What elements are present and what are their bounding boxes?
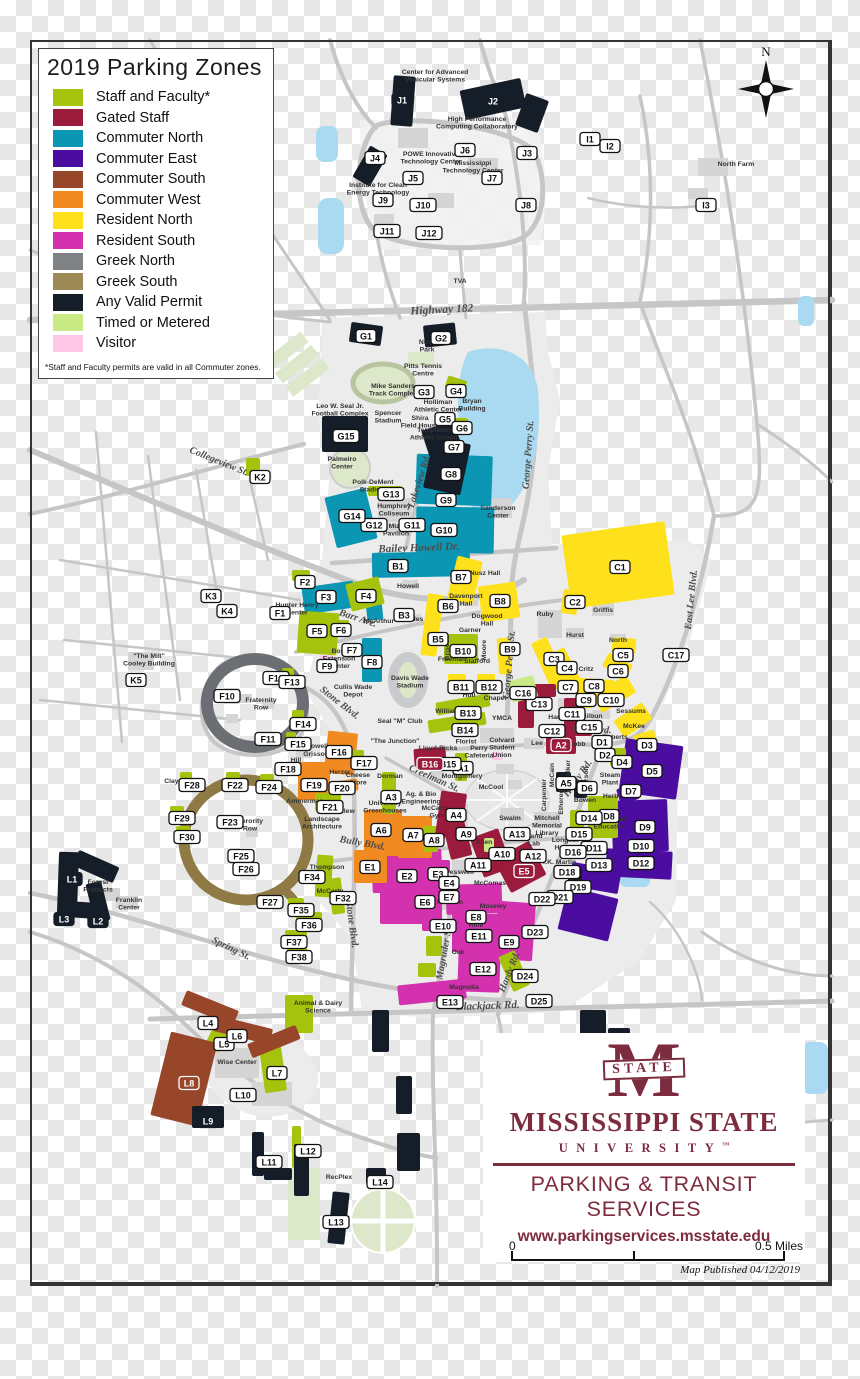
legend-label-cwest: Commuter West [96,192,200,208]
zone-marker-D22: D22 [529,893,555,906]
building-label: McArthur [364,618,395,625]
svg-text:B5: B5 [432,634,444,644]
svg-text:F10: F10 [219,691,235,701]
scale-line [511,1259,785,1261]
legend-title: 2019 Parking Zones [39,51,273,87]
legend-item-gated: Gated Staff [39,108,273,129]
trademark: ™ [722,1141,729,1149]
building-label: BryanBuilding [458,398,485,412]
svg-text:D24: D24 [517,971,534,981]
zone-marker-G14: G14 [339,510,365,523]
zone-marker-I3: I3 [696,199,716,212]
svg-text:F27: F27 [262,897,278,907]
north-label: N [761,44,771,59]
svg-text:D1: D1 [596,737,608,747]
building-label: McKee [623,723,645,730]
zone-marker-J10: J10 [410,199,436,212]
zone-marker-D14: D14 [576,812,602,825]
svg-text:D13: D13 [591,860,608,870]
svg-text:D7: D7 [625,786,637,796]
scale-tick-start [511,1251,513,1260]
svg-text:F25: F25 [233,851,249,861]
svg-text:A8: A8 [428,835,440,845]
svg-text:J9: J9 [378,195,388,205]
building-label: SpencerStadium [375,410,402,424]
map-canvas: Highway 182Collegeview St.George Perry S… [0,0,860,1379]
legend-items: Staff and Faculty*Gated StaffCommuter No… [39,87,273,354]
svg-text:F38: F38 [291,952,307,962]
svg-text:B11: B11 [453,682,469,692]
legend-item-visitor: Visitor [39,333,273,354]
zone-marker-L11: L11 [256,1156,282,1169]
svg-text:D23: D23 [527,927,544,937]
legend-label-timed: Timed or Metered [96,315,210,331]
svg-text:C16: C16 [515,688,532,698]
svg-text:F3: F3 [321,592,332,602]
zone-marker-G2: G2 [431,332,451,345]
zone-marker-J6: J6 [455,144,475,157]
building-label: FranklinCenter [116,897,142,911]
zone-marker-F23: F23 [217,816,243,829]
building-label: North Farm [718,161,755,168]
building-label: POWE InnovativeTechnology Center [400,151,461,165]
svg-text:A5: A5 [560,778,572,788]
legend-label-gsouth: Greek South [96,274,177,290]
zone-marker-B1: B1 [388,560,408,573]
svg-text:F19: F19 [306,780,322,790]
zone-marker-E10: E10 [430,920,456,933]
zone-marker-E12: E12 [470,963,496,976]
svg-text:D2: D2 [599,750,611,760]
svg-text:J11: J11 [380,226,395,236]
svg-text:F6: F6 [336,625,347,635]
zone-marker-K2: K2 [250,471,270,484]
svg-text:A9: A9 [460,829,472,839]
legend-label-ceast: Commuter East [96,151,197,167]
svg-text:L3: L3 [59,914,70,924]
svg-text:B13: B13 [460,708,477,718]
svg-text:G1: G1 [360,331,372,341]
scale-tick-end [783,1251,785,1260]
zone-marker-G3: G3 [414,386,434,399]
svg-text:B8: B8 [494,596,506,606]
svg-text:E6: E6 [419,897,430,907]
svg-text:F5: F5 [312,626,323,636]
svg-text:K4: K4 [221,606,233,616]
building-label: "The Junction" [371,738,420,745]
zone-marker-B5: B5 [428,633,448,646]
zone-marker-B10: B10 [450,645,476,658]
svg-text:D11: D11 [586,843,602,853]
zone-marker-A2: A2 [551,739,571,752]
legend-item-staff: Staff and Faculty* [39,87,273,108]
zone-marker-A9: A9 [456,828,476,841]
zone-marker-L10: L10 [230,1089,256,1102]
svg-text:G5: G5 [439,414,451,424]
svg-text:F32: F32 [335,893,351,903]
zone-marker-L2: L2 [88,915,108,928]
svg-text:A6: A6 [375,825,387,835]
svg-text:J10: J10 [415,200,430,210]
zone-marker-E11: E11 [466,930,492,943]
svg-text:C13: C13 [531,699,548,709]
zone-marker-J2: J2 [483,95,503,108]
svg-text:F30: F30 [179,832,195,842]
svg-text:A4: A4 [450,810,462,820]
zone-marker-F24: F24 [256,781,282,794]
zone-marker-E7: E7 [439,891,459,904]
legend-label-visitor: Visitor [96,335,136,351]
parking-lot-any [396,1076,412,1114]
legend-swatch-rnorth [53,212,83,229]
svg-text:J3: J3 [522,148,532,158]
svg-text:J4: J4 [370,153,380,163]
svg-text:F24: F24 [261,782,277,792]
zone-marker-G7: G7 [444,441,464,454]
zone-marker-L8: L8 [179,1077,199,1090]
svg-text:D18: D18 [559,867,576,877]
zone-marker-G8: G8 [441,468,461,481]
legend-swatch-cwest [53,191,83,208]
svg-text:C1: C1 [614,562,626,572]
legend-swatch-staff [53,89,83,106]
building-label: PalmeiroCenter [328,456,357,470]
msu-logo: M STATE [564,1037,724,1105]
zone-marker-F4: F4 [356,590,376,603]
zone-marker-F34: F34 [299,871,325,884]
legend-item-gsouth: Greek South [39,272,273,293]
svg-text:A10: A10 [494,849,511,859]
svg-text:D12: D12 [633,858,650,868]
svg-text:A3: A3 [385,792,397,802]
legend-item-ceast: Commuter East [39,149,273,170]
zone-marker-F30: F30 [174,831,200,844]
street-label: Spring St. [210,935,252,963]
zone-marker-F14: F14 [290,718,316,731]
zone-marker-D15: D15 [566,828,592,841]
zone-marker-B3: B3 [394,609,414,622]
legend-item-timed: Timed or Metered [39,313,273,334]
svg-text:A13: A13 [509,829,526,839]
legend-item-cwest: Commuter West [39,190,273,211]
svg-text:E1: E1 [364,862,375,872]
building-label: Seal "M" Club [378,718,423,725]
zone-marker-D9: D9 [635,821,655,834]
svg-text:L14: L14 [372,1177,388,1187]
svg-text:C9: C9 [580,695,592,705]
building-label: Wise Center [217,1059,257,1066]
legend-swatch-cnorth [53,130,83,147]
legend-footnote: *Staff and Faculty permits are valid in … [39,354,273,374]
svg-text:F28: F28 [184,780,200,790]
zone-marker-D24: D24 [512,970,538,983]
zone-marker-F36: F36 [296,919,322,932]
building-label: Howell [397,583,419,590]
zone-marker-C10: C10 [598,694,624,707]
zone-marker-F21: F21 [317,801,343,814]
zone-marker-F18: F18 [275,763,301,776]
legend-item-rnorth: Resident North [39,210,273,231]
zone-marker-J3: J3 [517,147,537,160]
building-label: LandscapeArchitecture [302,816,342,830]
zone-marker-D3: D3 [637,739,657,752]
svg-text:D22: D22 [534,894,551,904]
zone-marker-E6: E6 [415,896,435,909]
building-label: Magnolia [449,984,479,991]
parking-lot-any [264,1168,292,1180]
svg-text:C17: C17 [668,650,685,660]
building-label: Swalm [499,815,521,822]
zone-marker-F38: F38 [286,951,312,964]
zone-marker-L6: L6 [227,1030,247,1043]
zone-marker-A11: A11 [465,859,491,872]
svg-text:G7: G7 [448,442,460,452]
zone-marker-B7: B7 [451,571,471,584]
zone-marker-B12: B12 [476,681,502,694]
building-label: TVA [453,278,466,285]
svg-text:F1: F1 [275,608,286,618]
svg-text:B3: B3 [398,610,410,620]
svg-text:C6: C6 [612,666,624,676]
svg-text:F36: F36 [301,920,317,930]
legend-swatch-any [53,294,83,311]
svg-text:F7: F7 [347,645,358,655]
building-label: Griffis [593,607,613,614]
building-label: Hurst [566,632,584,639]
zone-marker-B16: B16 [417,758,443,771]
svg-text:L11: L11 [261,1157,276,1167]
building-label: McCool [479,784,504,791]
svg-text:J1: J1 [397,95,407,105]
svg-text:J2: J2 [488,96,498,106]
zone-marker-F20: F20 [329,782,355,795]
svg-text:D4: D4 [616,757,628,767]
university-word: UNIVERSITY™ [483,1141,805,1156]
zone-marker-K5: K5 [126,674,146,687]
zone-marker-C15: C15 [576,721,602,734]
svg-text:D16: D16 [565,847,582,857]
svg-text:F29: F29 [174,813,190,823]
zone-marker-C2: C2 [565,596,585,609]
zone-marker-L12: L12 [295,1145,321,1158]
zone-marker-L4: L4 [198,1017,218,1030]
zone-marker-F1: F1 [270,607,290,620]
svg-text:C15: C15 [581,722,598,732]
scale-bar: 0 0.5 Miles [511,1239,757,1261]
building-label: Lee [531,740,543,747]
legend-label-gnorth: Greek North [96,253,175,269]
svg-text:J6: J6 [460,145,470,155]
svg-text:G4: G4 [450,386,462,396]
zone-marker-A8: A8 [424,834,444,847]
zone-marker-G4: G4 [446,385,466,398]
zone-marker-J12: J12 [416,227,442,240]
zone-marker-E8: E8 [466,911,486,924]
zone-marker-E5: E5 [514,865,534,878]
svg-text:G8: G8 [445,469,457,479]
legend-label-cnorth: Commuter North [96,130,203,146]
zone-marker-K4: K4 [217,605,237,618]
zone-marker-F11: F11 [255,733,281,746]
zone-marker-G15: G15 [333,430,359,443]
zone-marker-F5: F5 [307,625,327,638]
building-label: High PerformanceComputing Collaboratory [436,116,518,130]
legend-item-gnorth: Greek North [39,251,273,272]
svg-text:F4: F4 [361,591,372,601]
zone-marker-F28: F28 [179,779,205,792]
zone-marker-D4: D4 [612,756,632,769]
zone-marker-G13: G13 [378,488,404,501]
zone-marker-L9: L9 [198,1115,218,1128]
legend-swatch-rsouth [53,232,83,249]
zone-marker-A12: A12 [520,850,546,863]
parking-lot-any [252,1132,264,1176]
msu-logo-banner: STATE [603,1058,685,1081]
building-label: McCain [549,763,556,787]
zone-marker-C5: C5 [613,649,633,662]
zone-marker-J11: J11 [374,225,400,238]
building-label: SteamPlant [600,772,620,786]
street-label: Blackjack Rd. [455,999,520,1013]
footer-panel: M STATE MISSISSIPPI STATE UNIVERSITY™ PA… [483,1033,805,1262]
building-label: McComas [474,880,506,887]
zone-marker-F26: F26 [233,863,259,876]
legend-swatch-gnorth [53,253,83,270]
zone-marker-F7: F7 [342,644,362,657]
svg-text:E5: E5 [518,866,529,876]
zone-marker-C8: C8 [584,680,604,693]
legend-box: 2019 Parking Zones Staff and Faculty*Gat… [38,48,274,379]
svg-text:D10: D10 [633,841,650,851]
zone-marker-F16: F16 [326,746,352,759]
building-label: Lloyd-Ricks [419,745,458,752]
zone-marker-G9: G9 [436,494,456,507]
svg-text:L2: L2 [93,916,104,926]
scale-tick-mid [633,1251,635,1260]
zone-marker-D16: D16 [560,846,586,859]
zone-marker-C6: C6 [608,665,628,678]
zone-marker-J8: J8 [516,199,536,212]
zone-marker-L13: L13 [323,1216,349,1229]
svg-text:A11: A11 [470,860,486,870]
legend-item-any: Any Valid Permit [39,292,273,313]
svg-text:E10: E10 [435,921,451,931]
zone-marker-J9: J9 [373,194,393,207]
legend-item-rsouth: Resident South [39,231,273,252]
building-label: North [609,637,627,644]
building-label: Ruby [537,611,554,618]
building-label: Leo W. Seal Jr.Football Complex [311,403,368,417]
svg-text:J5: J5 [408,173,418,183]
legend-label-gated: Gated Staff [96,110,169,126]
svg-text:J7: J7 [487,173,497,183]
zone-marker-D12: D12 [628,857,654,870]
zone-marker-D5: D5 [642,765,662,778]
svg-text:G12: G12 [365,520,382,530]
zone-marker-F22: F22 [222,779,248,792]
svg-text:E4: E4 [443,878,454,888]
zone-marker-F17: F17 [351,757,377,770]
svg-text:D5: D5 [646,766,658,776]
svg-text:K2: K2 [254,472,266,482]
parking-lot-staff [418,963,436,977]
svg-text:L7: L7 [272,1068,283,1078]
zone-marker-G10: G10 [431,524,457,537]
legend-label-rnorth: Resident North [96,212,193,228]
zone-marker-F37: F37 [281,936,307,949]
svg-text:B16: B16 [422,759,439,769]
svg-text:E11: E11 [471,931,487,941]
svg-text:E12: E12 [475,964,491,974]
zone-marker-F6: F6 [331,624,351,637]
building-label: Center for AdvancedVehicular Systems [402,69,469,83]
svg-text:F15: F15 [290,739,306,749]
svg-text:I3: I3 [702,200,710,210]
svg-text:L9: L9 [203,1116,214,1126]
svg-text:G3: G3 [418,387,430,397]
svg-text:C12: C12 [544,726,561,736]
svg-text:C5: C5 [617,650,629,660]
zone-marker-I2: I2 [600,140,620,153]
zone-marker-C1: C1 [610,561,630,574]
svg-text:I1: I1 [586,134,594,144]
zone-marker-D6: D6 [577,782,597,795]
svg-text:F22: F22 [227,780,243,790]
svg-text:A7: A7 [407,830,419,840]
zone-marker-D7: D7 [621,785,641,798]
zone-marker-F32: F32 [330,892,356,905]
zone-marker-E9: E9 [499,936,519,949]
zone-marker-C4: C4 [557,662,577,675]
svg-text:F18: F18 [280,764,296,774]
zone-marker-A5: A5 [556,777,576,790]
zone-marker-J1: J1 [392,94,412,107]
university-text: UNIVERSITY [559,1141,723,1155]
zone-marker-A10: A10 [489,848,515,861]
svg-text:F23: F23 [222,817,238,827]
zone-marker-B8: B8 [490,595,510,608]
svg-text:C8: C8 [588,681,600,691]
department-title: PARKING & TRANSIT SERVICES [483,1172,805,1222]
building-label: YMCA [492,715,512,722]
svg-text:L1: L1 [67,874,78,884]
legend-label-rsouth: Resident South [96,233,195,249]
svg-text:G15: G15 [337,431,354,441]
zone-marker-C16: C16 [510,687,536,700]
building-label: Garner [459,627,482,634]
legend-swatch-timed [53,314,83,331]
building-label: Chapel [484,695,507,702]
svg-text:D9: D9 [639,822,651,832]
svg-text:C10: C10 [603,695,620,705]
zone-marker-F19: F19 [301,779,327,792]
svg-text:F20: F20 [334,783,350,793]
building-label: Nusz Hall [470,570,501,577]
svg-text:F37: F37 [286,937,302,947]
svg-text:E13: E13 [442,997,458,1007]
legend-swatch-ceast [53,150,83,167]
zone-marker-B6: B6 [438,600,458,613]
zone-marker-F29: F29 [169,812,195,825]
svg-text:E7: E7 [443,892,454,902]
zone-marker-A4: A4 [446,809,466,822]
svg-text:F26: F26 [238,864,254,874]
legend-swatch-gated [53,109,83,126]
svg-text:B6: B6 [442,601,454,611]
svg-text:D25: D25 [531,996,548,1006]
svg-text:E2: E2 [401,871,412,881]
zone-marker-A7: A7 [403,829,423,842]
